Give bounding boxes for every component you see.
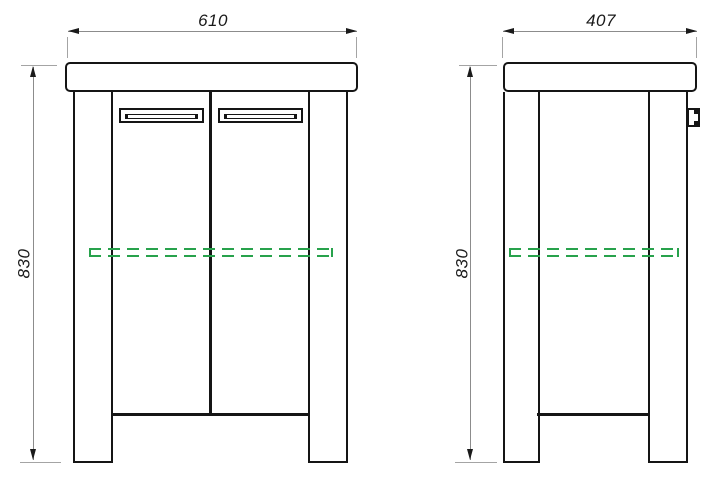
right-door-handle bbox=[218, 108, 303, 123]
side-shelf-dash-bottom bbox=[509, 255, 679, 257]
dim-arrow-up-icon bbox=[30, 66, 36, 77]
front-shelf-dash-bottom bbox=[89, 255, 333, 257]
right-door-handle-bar bbox=[224, 114, 297, 119]
left-door-handle bbox=[119, 108, 204, 123]
front-height-extension-bottom bbox=[20, 462, 61, 463]
left-door-handle-bar bbox=[125, 114, 198, 119]
side-panel-bottom-edge bbox=[537, 413, 650, 416]
side-height-extension-top bbox=[459, 65, 497, 66]
side-width-extension-right bbox=[696, 37, 697, 58]
dim-arrow-up-icon bbox=[467, 66, 473, 77]
side-shelf-dash-top bbox=[509, 248, 679, 250]
side-height-label: 830 bbox=[453, 234, 472, 294]
front-shelf-dashed-outline bbox=[89, 248, 333, 257]
front-right-leg bbox=[308, 92, 348, 463]
dim-arrow-left-icon bbox=[68, 28, 79, 34]
dim-arrow-right-icon bbox=[686, 28, 697, 34]
front-shelf-dash-top bbox=[89, 248, 333, 250]
side-shelf-dash-end-right bbox=[677, 248, 679, 257]
front-height-extension-top bbox=[21, 65, 57, 66]
side-width-extension-left bbox=[502, 37, 503, 58]
dim-arrow-down-icon bbox=[467, 449, 473, 460]
side-shelf-dashed-outline bbox=[509, 248, 679, 257]
side-back-leg bbox=[503, 92, 540, 463]
front-shelf-dash-end-left bbox=[89, 248, 91, 257]
side-door-handle bbox=[687, 108, 700, 127]
side-shelf-dash-end-left bbox=[509, 248, 511, 257]
side-width-dimension-line bbox=[503, 31, 697, 32]
front-height-label: 830 bbox=[15, 234, 34, 294]
side-door-handle-lip-top bbox=[694, 110, 699, 115]
front-width-label: 610 bbox=[183, 11, 243, 30]
side-width-label: 407 bbox=[571, 11, 631, 30]
side-door-handle-lip-bottom bbox=[694, 121, 699, 126]
front-shelf-dash-end-right bbox=[331, 248, 333, 257]
dim-arrow-right-icon bbox=[346, 28, 357, 34]
front-left-leg bbox=[73, 92, 113, 463]
front-top-panel bbox=[65, 62, 358, 92]
dim-arrow-left-icon bbox=[503, 28, 514, 34]
front-width-extension-left bbox=[67, 37, 68, 58]
side-height-extension-bottom bbox=[455, 462, 497, 463]
side-top-panel bbox=[503, 62, 697, 92]
front-width-extension-right bbox=[356, 37, 357, 58]
dim-arrow-down-icon bbox=[30, 449, 36, 460]
side-front-leg bbox=[648, 92, 688, 463]
drawing-canvas: 610 830 bbox=[0, 0, 720, 485]
front-width-dimension-line bbox=[68, 31, 357, 32]
